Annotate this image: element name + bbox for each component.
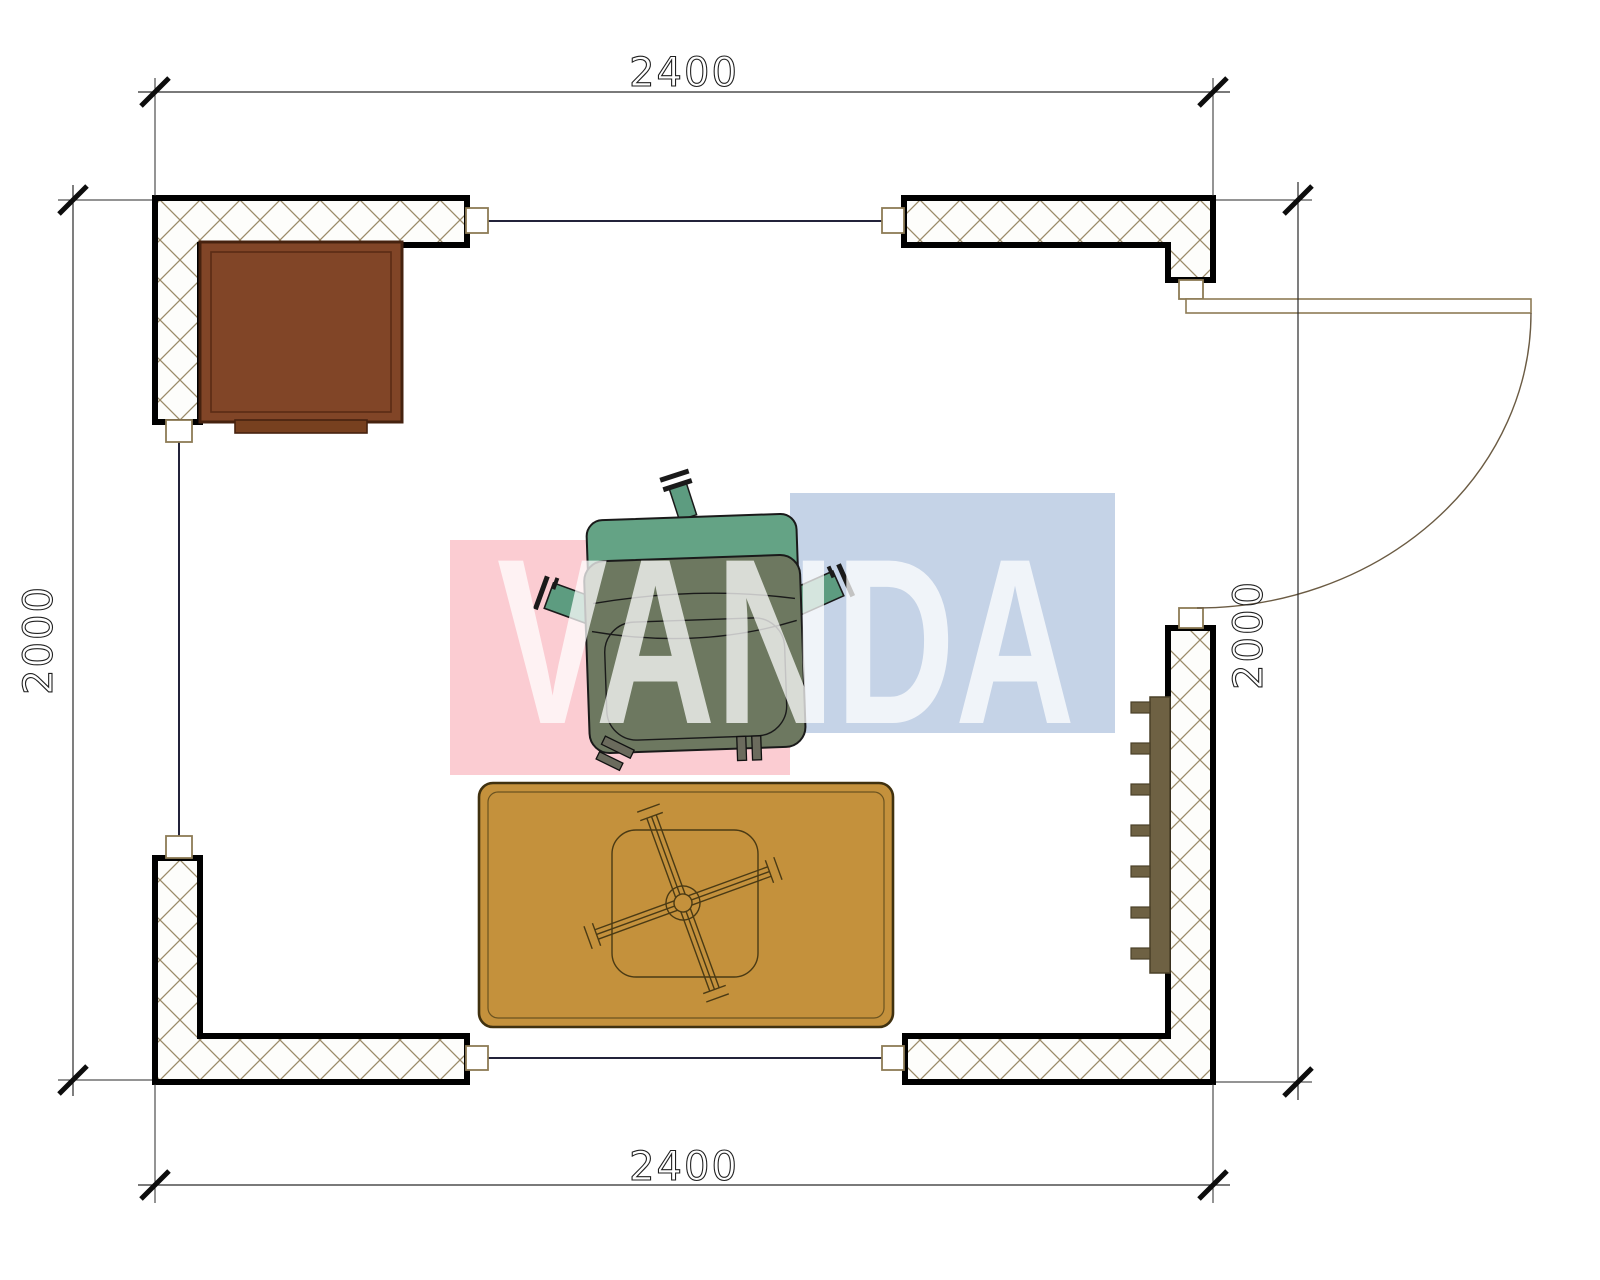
dimension-left: 2000 xyxy=(16,185,152,1096)
rug-table xyxy=(479,774,893,1033)
window-connector xyxy=(166,836,192,858)
door-jamb-bottom xyxy=(1179,608,1203,628)
radiator xyxy=(1131,697,1170,973)
door-swing-arc xyxy=(1197,313,1531,608)
desk xyxy=(200,242,402,433)
desk-tray xyxy=(235,420,367,433)
window-connector xyxy=(882,208,904,233)
door-leaf xyxy=(1186,299,1531,313)
radiator-fins xyxy=(1131,702,1150,959)
window-connector xyxy=(166,420,192,442)
wall-top-right xyxy=(904,198,1213,280)
radiator-body xyxy=(1150,697,1170,973)
dimension-right: 2000 xyxy=(1216,182,1312,1100)
window-connector xyxy=(882,1046,904,1070)
window-connector xyxy=(466,208,488,233)
dimension-bottom: 2400 xyxy=(138,1084,1230,1203)
floor-plan-canvas: 2400 2400 2000 2000 VANDA xyxy=(0,0,1600,1280)
floor-plan-drawing: 2400 2400 2000 2000 VANDA xyxy=(0,0,1600,1280)
door xyxy=(1179,280,1531,628)
dim-label-bottom: 2400 xyxy=(629,1144,739,1190)
watermark-text: VANDA xyxy=(497,510,1075,774)
dim-label-right: 2000 xyxy=(1226,580,1272,690)
door-jamb-top xyxy=(1179,280,1203,299)
window-connector xyxy=(466,1046,488,1070)
desk-top xyxy=(200,242,402,422)
dimension-top: 2400 xyxy=(138,50,1230,196)
wall-bottom-left xyxy=(155,858,467,1082)
dim-label-top: 2400 xyxy=(629,50,739,96)
dim-label-left: 2000 xyxy=(16,585,62,695)
